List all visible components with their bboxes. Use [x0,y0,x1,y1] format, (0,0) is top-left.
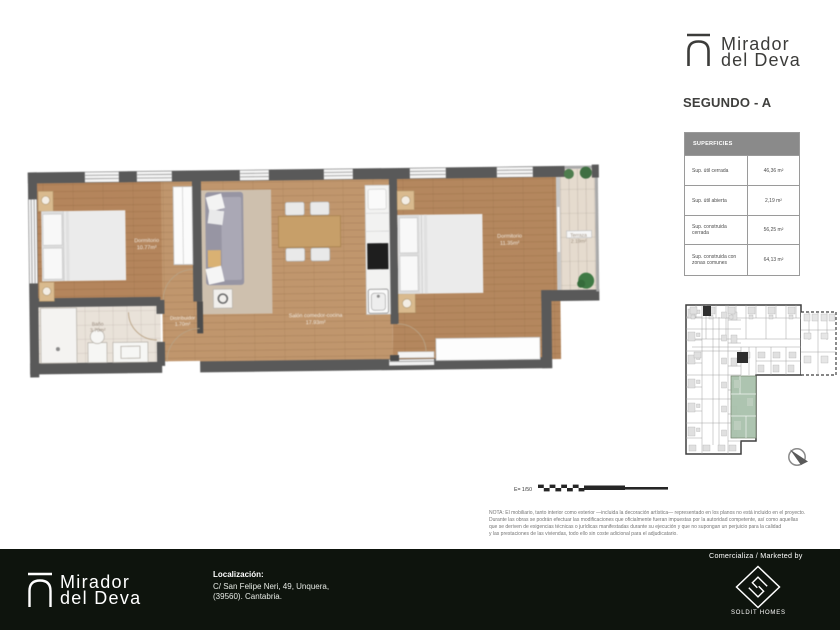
svg-text:2.19m²: 2.19m² [571,239,587,245]
svg-text:17.93m²: 17.93m² [306,320,326,326]
svg-text:11.35m²: 11.35m² [500,240,520,246]
svg-text:E= 1/50: E= 1/50 [514,487,532,493]
svg-text:1.70m²: 1.70m² [175,322,191,328]
svg-text:Dormitorio: Dormitorio [497,233,522,239]
svg-text:del Deva: del Deva [721,50,801,70]
svg-text:10.77m²: 10.77m² [137,245,157,251]
svg-text:Dormitorio: Dormitorio [134,238,159,244]
svg-text:3.70m²: 3.70m² [90,328,106,334]
svg-text:Salón comedor-cocina: Salón comedor-cocina [289,313,343,320]
